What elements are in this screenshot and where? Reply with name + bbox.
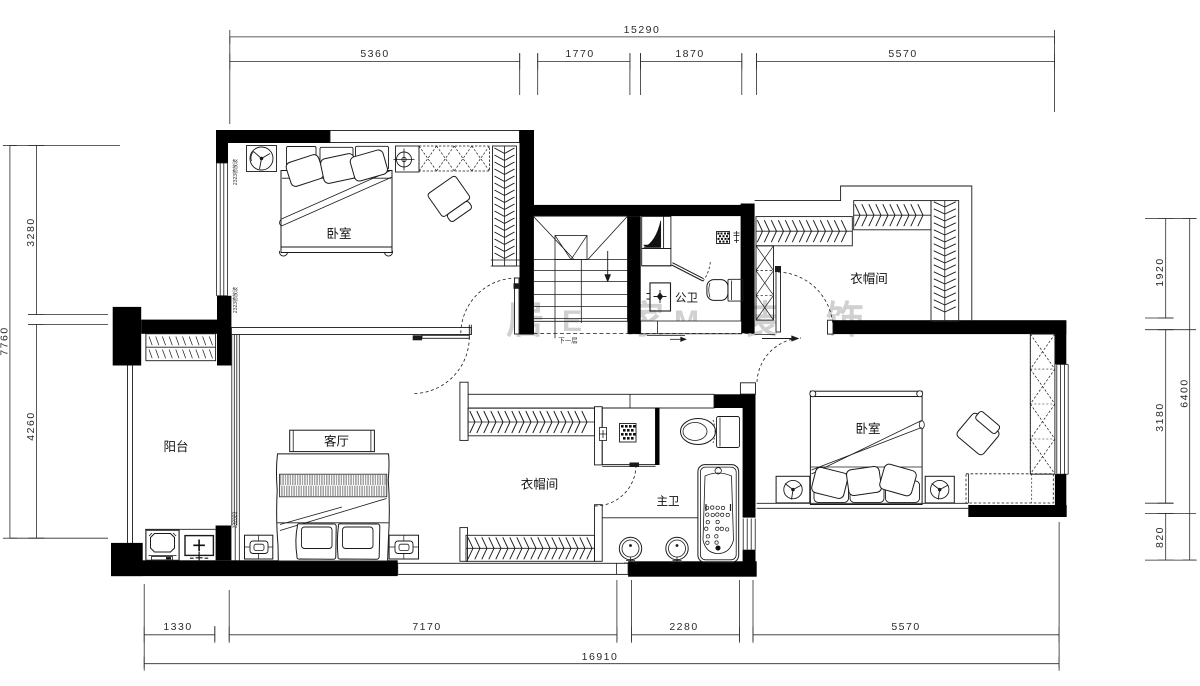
- svg-text:5570: 5570: [888, 48, 917, 60]
- svg-text:2323德放玻: 2323德放玻: [232, 287, 239, 313]
- svg-text:3280: 3280: [25, 217, 37, 246]
- svg-text:下一层: 下一层: [558, 337, 578, 345]
- svg-text:卧室: 卧室: [326, 226, 351, 241]
- svg-text:3180: 3180: [1154, 402, 1166, 431]
- svg-text:1770: 1770: [565, 48, 594, 60]
- svg-text:公卫: 公卫: [675, 292, 698, 305]
- svg-text:1920: 1920: [1154, 257, 1166, 286]
- svg-text:7170: 7170: [412, 621, 441, 633]
- svg-text:16910: 16910: [582, 651, 619, 663]
- svg-text:1330: 1330: [163, 621, 192, 633]
- svg-text:客厅: 客厅: [324, 434, 349, 449]
- svg-text:衣帽间: 衣帽间: [850, 271, 888, 286]
- svg-text:15290: 15290: [624, 24, 661, 36]
- svg-text:阳台: 阳台: [163, 439, 188, 454]
- svg-text:2280: 2280: [669, 621, 698, 633]
- svg-text:6400: 6400: [1178, 378, 1190, 407]
- svg-text:5570: 5570: [891, 621, 920, 633]
- svg-text:7760: 7760: [0, 326, 11, 355]
- svg-text:主卫: 主卫: [657, 495, 680, 508]
- svg-text:4260: 4260: [25, 411, 37, 440]
- svg-text:5360: 5360: [360, 48, 389, 60]
- svg-text:衣帽间: 衣帽间: [521, 477, 559, 492]
- svg-text:232323: 232323: [233, 511, 239, 528]
- svg-text:820: 820: [1154, 526, 1166, 548]
- svg-text:卧室: 卧室: [855, 421, 880, 436]
- svg-text:2323德放玻: 2323德放玻: [232, 159, 239, 185]
- svg-text:1870: 1870: [675, 48, 704, 60]
